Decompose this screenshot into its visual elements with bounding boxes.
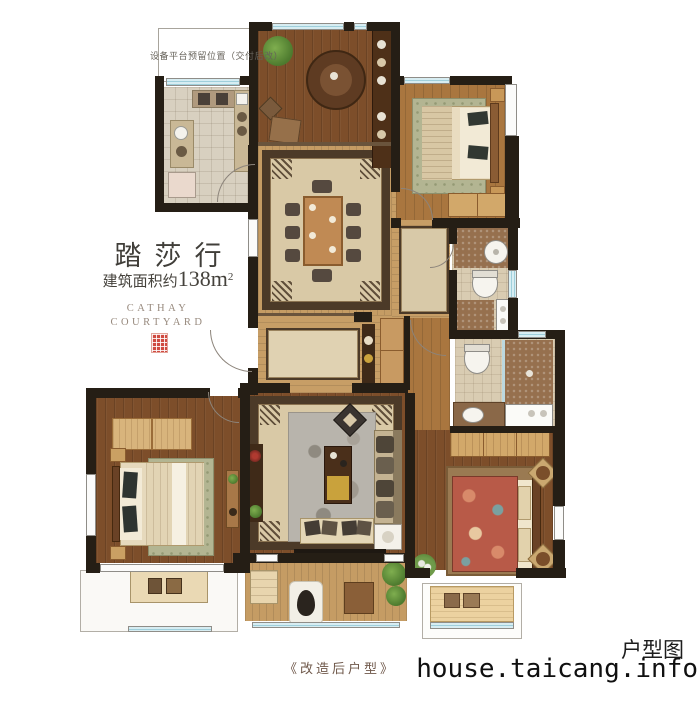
rug-ornament <box>260 405 280 425</box>
plate-icon <box>329 246 336 253</box>
dining-chair <box>312 269 332 282</box>
rug-ornament <box>272 159 292 179</box>
window <box>272 23 344 30</box>
wall <box>344 22 354 31</box>
picture-frame-icon <box>166 578 182 594</box>
tea-set-icon <box>330 72 338 80</box>
wall <box>155 76 164 212</box>
guitar-icon <box>297 590 315 616</box>
desk-item-icon <box>229 508 237 516</box>
floorplan-page: 设备平台预留位置（交付后改） <box>0 0 700 701</box>
wall <box>450 426 556 433</box>
wall <box>238 388 250 398</box>
rug-ornament <box>360 281 380 301</box>
sofa-cushion <box>376 436 394 453</box>
sofa-back <box>393 430 402 524</box>
wall <box>86 388 210 398</box>
sliding-window <box>100 564 224 572</box>
tea-table-top <box>320 64 352 96</box>
shower-glass <box>502 340 505 406</box>
wall <box>224 563 250 573</box>
shelf-dish-icon <box>377 58 386 67</box>
window <box>518 331 546 338</box>
dining-chair <box>346 203 361 216</box>
display-shelf <box>372 30 392 168</box>
window <box>166 78 240 86</box>
dining-chair <box>285 203 300 216</box>
wardrobe-divider <box>483 432 484 457</box>
window <box>508 270 517 298</box>
balcony-cabinet <box>250 570 278 604</box>
wall <box>352 383 408 393</box>
wall <box>354 312 372 322</box>
pillow-icon <box>467 111 488 126</box>
ottoman-icon <box>268 116 301 145</box>
dining-chair <box>285 249 300 262</box>
wall <box>508 298 518 332</box>
nightstand-top <box>536 466 550 480</box>
red-flower-icon <box>249 450 261 462</box>
bench-pillow <box>321 520 337 535</box>
seat-pillow <box>444 593 460 608</box>
wall <box>553 540 565 578</box>
bedroom2-blanket <box>422 106 452 180</box>
corridor-rug <box>399 226 449 314</box>
pillow-icon <box>122 506 138 533</box>
wall <box>405 393 415 573</box>
kitchen-sink-icon <box>236 93 248 105</box>
cabinet-divider <box>380 350 404 351</box>
wardrobe-divider <box>151 418 153 450</box>
bowl-icon <box>382 531 394 543</box>
wall <box>449 330 565 339</box>
wall <box>432 218 520 228</box>
knob-icon <box>540 410 547 417</box>
wardrobe-divider <box>477 193 478 217</box>
rug-ornament <box>260 521 280 541</box>
area-prefix: 建筑面积约 <box>103 274 178 290</box>
window <box>86 474 96 536</box>
nightstand <box>490 88 505 102</box>
bay-window-glass <box>430 622 514 629</box>
master-wardrobe <box>450 432 550 457</box>
wall <box>449 270 457 332</box>
watermark-site: house.taicang.info <box>416 654 698 684</box>
wall <box>252 22 272 31</box>
kitchen-appliance-icon <box>237 112 247 122</box>
window <box>505 84 517 136</box>
pillow-icon <box>122 472 138 499</box>
wardrobe-divider <box>516 432 517 457</box>
wall <box>449 228 457 244</box>
balcony-window <box>128 626 212 632</box>
shoe-cabinet <box>380 318 404 384</box>
caption: 《改造后户型》 <box>255 658 425 677</box>
knob-icon <box>500 318 506 324</box>
knob-icon <box>528 410 535 417</box>
bedroom2-headboard <box>490 103 499 183</box>
shelf-dish-icon <box>377 40 386 49</box>
plant-icon <box>228 474 238 484</box>
kitchen-appliance-icon <box>237 126 247 136</box>
balcony-window <box>252 622 400 628</box>
stove-burner-icon <box>198 93 210 105</box>
round-sink-icon <box>174 126 188 140</box>
dining-chair <box>312 180 332 193</box>
area-sup: 2 <box>228 271 234 283</box>
wall <box>240 76 254 85</box>
platform-note: 设备平台预留位置（交付后改） <box>150 49 290 62</box>
master-bed-floral <box>452 476 518 572</box>
plant-icon <box>382 562 406 586</box>
decor-bowl-icon <box>364 336 373 345</box>
toilet-tank-icon <box>472 270 498 278</box>
brand-block: CATHAY COURTYARD <box>78 302 238 330</box>
nightstand <box>110 546 126 560</box>
wall <box>155 203 258 212</box>
stove-burner-icon <box>216 93 228 105</box>
window <box>384 554 404 562</box>
wall <box>391 218 401 228</box>
shelf-dish-icon <box>377 130 386 139</box>
teapot-icon <box>340 460 347 467</box>
sofa-cushion <box>376 457 394 474</box>
hallway-rug <box>266 328 360 380</box>
knob-icon <box>500 306 506 312</box>
bench-pillow <box>356 520 372 536</box>
plant-icon <box>249 505 262 518</box>
window <box>354 23 367 30</box>
entry-door-arc <box>210 330 252 372</box>
wall <box>505 136 519 228</box>
shower-mat <box>454 300 494 331</box>
dining-chair <box>346 249 361 262</box>
wall <box>450 76 512 85</box>
shelf-dish-icon <box>377 112 386 121</box>
seat-pillow <box>463 593 480 608</box>
pot-icon <box>176 146 187 157</box>
brand-line2: COURTYARD <box>78 316 238 330</box>
pillow-icon <box>467 145 488 160</box>
wall <box>249 22 258 164</box>
wall <box>86 563 100 573</box>
pillow-icon <box>518 486 531 520</box>
bench-pillow <box>304 520 321 536</box>
floor-cushion <box>344 582 374 614</box>
plate-icon <box>309 204 316 211</box>
wall <box>396 76 404 85</box>
bench-pillow <box>341 520 357 535</box>
wall <box>404 316 410 390</box>
shelf-dish-icon <box>377 76 386 85</box>
gold-tray <box>327 476 349 500</box>
sofa-cushion <box>376 501 394 518</box>
picture-frame-icon <box>148 578 162 594</box>
teacup-icon <box>330 452 337 459</box>
sofa-cushion <box>376 480 394 497</box>
brand-line1: CATHAY <box>78 302 238 316</box>
toilet-tank-icon <box>464 344 490 352</box>
bathroom1-door-arc <box>430 244 454 268</box>
nightstand <box>110 448 126 462</box>
wall <box>240 393 250 555</box>
plate-icon <box>309 232 316 239</box>
wall <box>405 568 430 578</box>
dining-chair <box>285 226 300 239</box>
window <box>248 219 258 257</box>
window <box>404 77 450 84</box>
opening-beam <box>258 142 392 146</box>
wall <box>553 430 565 506</box>
wall <box>508 228 518 270</box>
drain-icon <box>526 370 533 377</box>
wall <box>391 22 400 192</box>
opening-beam <box>258 313 356 316</box>
plant-icon <box>386 586 406 606</box>
bedroom1-headboard <box>112 466 120 542</box>
nightstand-top <box>536 552 550 566</box>
rug-ornament <box>272 281 292 301</box>
drain-icon <box>493 249 499 255</box>
area-label: 建筑面积约138m2 <box>70 266 266 292</box>
window <box>256 554 278 562</box>
wall <box>555 339 565 432</box>
wall <box>86 392 96 474</box>
dining-chair <box>346 226 361 239</box>
oval-sink-icon <box>462 407 484 423</box>
fridge-icon <box>168 172 196 198</box>
wall <box>155 76 164 85</box>
plate-icon <box>329 216 336 223</box>
red-seal-icon <box>151 333 168 353</box>
area-number: 138m <box>178 266 228 291</box>
bed-runner <box>172 463 186 545</box>
window <box>554 506 564 540</box>
decor-bowl-icon <box>364 354 373 363</box>
